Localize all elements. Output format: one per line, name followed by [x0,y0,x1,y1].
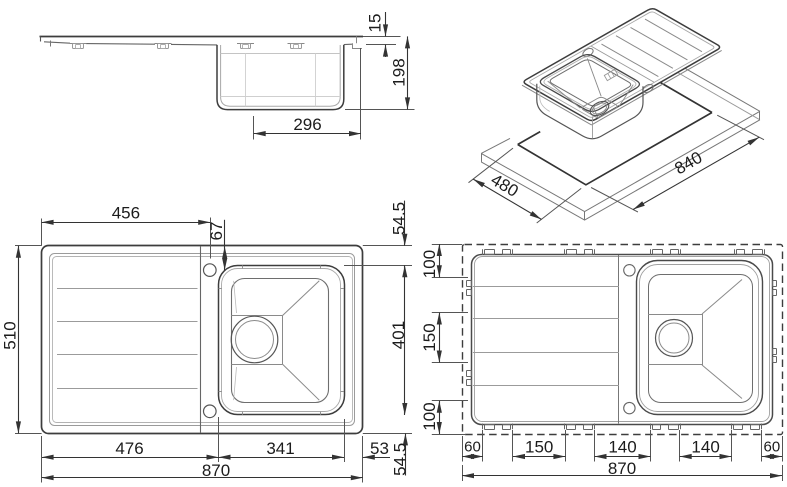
svg-text:456: 456 [112,204,140,223]
svg-text:15: 15 [366,14,385,33]
svg-text:60: 60 [464,439,481,456]
svg-text:341: 341 [266,439,294,458]
svg-text:476: 476 [115,439,143,458]
svg-text:60: 60 [764,439,781,456]
svg-text:870: 870 [608,459,636,478]
svg-text:140: 140 [608,438,636,457]
svg-text:870: 870 [202,461,230,480]
svg-text:198: 198 [389,58,408,86]
svg-text:100: 100 [420,402,439,430]
svg-text:296: 296 [293,115,321,134]
svg-text:150: 150 [525,438,553,457]
svg-text:401: 401 [389,321,408,349]
svg-text:140: 140 [691,438,719,457]
svg-text:100: 100 [420,250,439,278]
svg-text:53: 53 [370,439,389,458]
svg-text:67: 67 [207,222,226,241]
svg-text:150: 150 [420,323,439,351]
svg-text:54.5: 54.5 [390,443,409,476]
svg-text:54.5: 54.5 [389,202,408,235]
svg-text:510: 510 [1,321,20,349]
